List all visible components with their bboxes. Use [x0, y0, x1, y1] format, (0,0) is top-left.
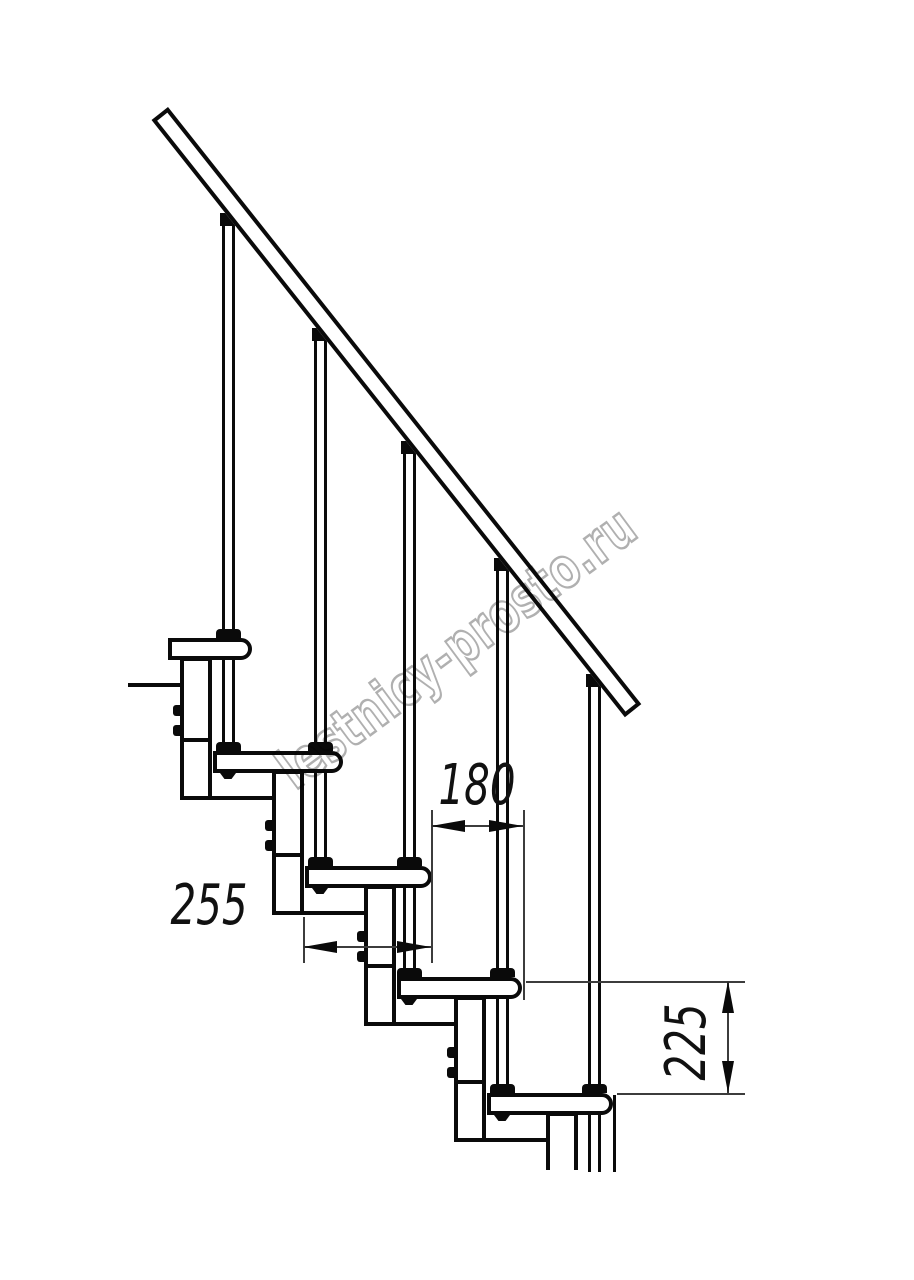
- module-divider-line: [180, 738, 212, 742]
- staircase-technical-drawing: 180 255 225 lestnicy-prosto.ru: [0, 0, 914, 1280]
- module-divider-line: [454, 1080, 486, 1084]
- arrowhead-icon: [722, 1061, 734, 1093]
- spine-module: [364, 885, 396, 1026]
- module-divider-line: [364, 964, 396, 968]
- module-lip-line: [454, 1138, 546, 1142]
- bolt-tab: [173, 705, 181, 716]
- bolt-tab: [357, 931, 365, 942]
- spine-module: [180, 657, 212, 800]
- dimension-value-180: 180: [439, 758, 516, 814]
- bolt-nut: [312, 888, 328, 894]
- spine-module: [454, 996, 486, 1142]
- bolt-tab: [173, 725, 181, 736]
- arrowhead-icon: [397, 941, 431, 953]
- module-lip-line: [364, 1022, 456, 1026]
- extension-line: [303, 917, 305, 963]
- bolt-tab: [447, 1047, 455, 1058]
- post-foot: [216, 629, 241, 638]
- post-foot: [582, 1084, 607, 1093]
- cut-edge-line: [613, 1095, 616, 1172]
- tread: [305, 866, 432, 888]
- dimension-value-225: 225: [659, 1004, 715, 1081]
- bolt-tab: [447, 1067, 455, 1078]
- baluster: [314, 338, 327, 751]
- support-post: [496, 999, 509, 1093]
- arrowhead-icon: [722, 981, 734, 1013]
- baluster: [588, 684, 601, 1093]
- post-foot: [490, 1084, 515, 1093]
- baluster: [222, 223, 235, 638]
- bolt-nut: [401, 999, 417, 1005]
- module-divider-line: [272, 853, 304, 857]
- extension-line: [523, 810, 525, 1000]
- spine-module: [546, 1112, 578, 1170]
- post-foot: [308, 857, 333, 866]
- bolt-tab: [265, 840, 273, 851]
- dimension-value-255: 255: [171, 878, 248, 934]
- bolt-tab: [357, 951, 365, 962]
- tread: [487, 1093, 613, 1115]
- module-lip-line: [272, 911, 364, 915]
- module-lip-line: [180, 796, 272, 800]
- bolt-nut: [220, 773, 236, 779]
- tread: [397, 977, 522, 999]
- bolt-tab: [265, 820, 273, 831]
- module-lip-line: [128, 683, 180, 687]
- post-foot: [490, 968, 515, 977]
- support-post: [588, 1114, 601, 1172]
- support-post: [403, 888, 416, 977]
- extension-line: [526, 981, 745, 983]
- support-post: [222, 660, 235, 751]
- arrowhead-icon: [303, 941, 337, 953]
- extension-line: [431, 810, 433, 963]
- post-foot: [397, 857, 422, 866]
- bolt-nut: [494, 1115, 510, 1121]
- arrowhead-icon: [489, 820, 523, 832]
- tread: [168, 638, 252, 660]
- extension-line: [617, 1093, 745, 1095]
- arrowhead-icon: [431, 820, 465, 832]
- post-foot: [216, 742, 241, 751]
- post-foot: [397, 968, 422, 977]
